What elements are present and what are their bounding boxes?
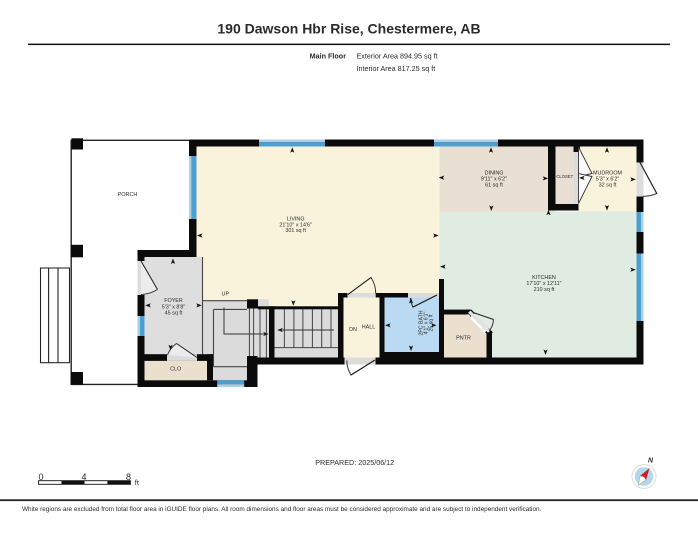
svg-text:301 sq ft: 301 sq ft (285, 228, 306, 234)
svg-text:White regions are excluded fro: White regions are excluded from total fl… (22, 506, 542, 513)
svg-text:CLO: CLO (170, 367, 181, 373)
svg-text:Main Floor: Main Floor (310, 52, 347, 61)
svg-text:DN: DN (349, 327, 357, 333)
svg-text:FOYER: FOYER (164, 298, 183, 304)
svg-text:PNTR: PNTR (456, 335, 471, 341)
svg-text:190 Dawson Hbr Rise, Chesterme: 190 Dawson Hbr Rise, Chestermere, AB (217, 21, 480, 37)
svg-text:N: N (648, 458, 654, 465)
svg-text:Interior Area 817.25 sq ft: Interior Area 817.25 sq ft (357, 64, 436, 73)
svg-text:Exterior Area 894.95 sq ft: Exterior Area 894.95 sq ft (357, 52, 438, 61)
svg-text:5'3" x 8'8": 5'3" x 8'8" (162, 304, 186, 310)
svg-text:210 sq ft: 210 sq ft (534, 287, 555, 293)
svg-text:PORCH: PORCH (118, 192, 138, 198)
svg-text:UP: UP (222, 291, 230, 297)
svg-text:HALL: HALL (362, 324, 376, 330)
svg-text:45 sq ft: 45 sq ft (165, 311, 183, 317)
svg-text:61 sq ft: 61 sq ft (485, 182, 503, 188)
svg-text:CLOSET: CLOSET (556, 174, 573, 179)
svg-text:25 sq ft: 25 sq ft (429, 314, 435, 332)
svg-text:ft: ft (135, 478, 140, 487)
svg-text:32 sq ft: 32 sq ft (599, 182, 617, 188)
svg-text:PREPARED: 2025/06/12: PREPARED: 2025/06/12 (315, 458, 394, 467)
